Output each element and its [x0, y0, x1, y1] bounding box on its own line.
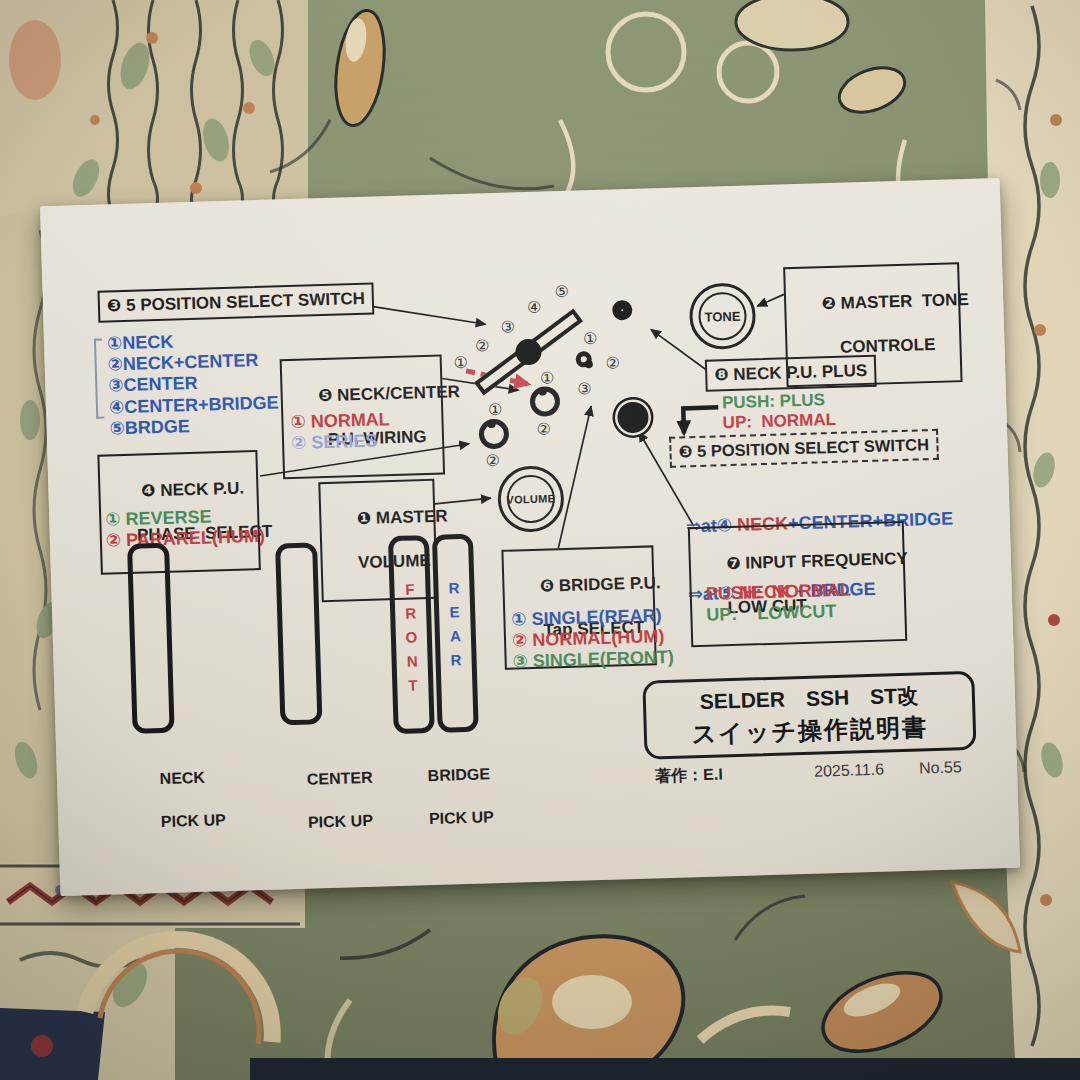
center-pickup-line1: CENTER: [306, 768, 372, 787]
tap-options: ① SINGLE(REAR) ② NORMAL(HUM) ③ SINGLE(FR…: [511, 605, 674, 673]
pu-wiring-line1: ❺ NECK/CENTER: [318, 382, 460, 405]
neck-plus-box: ❽ NECK P.U. PLUS: [705, 355, 877, 392]
wiring-knob-label-1: ①: [536, 367, 559, 390]
neck-plus-up: UP: NORMAL: [722, 410, 836, 433]
arrow-to-lever: [373, 303, 486, 327]
sheet-date: 2025.11.6: [814, 761, 885, 781]
sheet-number: No.55: [919, 758, 962, 777]
center-pickup: [275, 542, 322, 725]
phase-select-line1: ❹ NECK P.U.: [141, 479, 244, 501]
fan-number-5: ⑤: [550, 281, 573, 304]
input-freq-options: PUSH: NORMAL UP: LOWCUT: [705, 580, 851, 627]
fan-number-3: ③: [496, 316, 519, 339]
wiring-options: ① NORMAL ② SERIES: [290, 409, 390, 454]
neck-pickup: [127, 543, 175, 734]
photo-of-switch-manual: ❸ 5 POSITION SELECT SWITCH ①NECK ②NECK+C…: [0, 0, 1080, 1080]
phase-options: ① REVERSE ② PARAREL(HUM): [105, 505, 265, 552]
tone-knob-label: TONE: [698, 291, 747, 340]
bridge-rear-label: REAR: [445, 579, 466, 727]
center-pickup-label: CENTER PICK UP: [279, 745, 375, 856]
bridge-pickup-rear-coil: REAR: [432, 534, 479, 733]
bridge-pickup-line2: PICK UP: [429, 808, 494, 827]
instruction-sheet: ❸ 5 POSITION SELECT SWITCH ①NECK ②NECK+C…: [40, 178, 1020, 896]
wiring-option-2: ② SERIES: [291, 430, 391, 454]
elbow-arrow-push: [683, 407, 719, 433]
bridge-tap-line1: ❻ BRIDGE P.U.: [540, 573, 661, 596]
bridge-front-label: FRONT: [401, 580, 422, 728]
neck-pickup-line1: NECK: [159, 768, 205, 786]
bridge-pickup-label: BRIDGE PICK UP: [400, 741, 495, 852]
select-position-list: ①NECK ②NECK+CENTER ③CENTER ④CENTER+BRIDG…: [107, 328, 280, 439]
neck-pickup-line2: PICK UP: [161, 811, 226, 830]
master-tone-line2: CONTROLE: [840, 335, 936, 357]
tap-pot-label-2: ②: [602, 352, 625, 375]
tap-pot: [576, 351, 592, 367]
sheet-title-box: SELDER SSH ST改 スイッチ操作説明書: [642, 671, 976, 760]
wiring-knob-label-2: ②: [532, 418, 555, 441]
input-freq-up: UP: LOWCUT: [706, 601, 852, 627]
phase-knob-dot: [488, 420, 496, 428]
sheet-title-line2: スイッチ操作説明書: [650, 710, 969, 751]
master-volume-line1: ❶ MASTER: [356, 507, 447, 529]
wiring-option-1: ① NORMAL: [290, 409, 390, 433]
tap-pot-label-3: ③: [573, 378, 596, 401]
fan-number-1: ①: [449, 352, 472, 375]
fan-number-4: ④: [523, 296, 546, 319]
arrow-tone: [757, 294, 784, 306]
neck-plus-options: PUSH: PLUS UP: NORMAL: [722, 390, 836, 433]
center-pickup-line2: PICK UP: [308, 812, 373, 831]
tap-pot-label-1: ①: [579, 328, 602, 351]
author-credit: 著作：E.I: [655, 764, 723, 787]
neck-pickup-label: NECK PICK UP: [132, 744, 227, 855]
arrow-volume: [435, 498, 491, 504]
bridge-pickup-line1: BRIDGE: [427, 765, 490, 784]
phase-knob-label-2: ②: [481, 450, 504, 473]
fan-number-2: ②: [471, 335, 494, 358]
master-tone-line1: ❷ MASTER TONE: [821, 290, 969, 313]
bridge-pickup-front-coil: FRONT: [388, 535, 435, 734]
volume-knob-label: VOLUME: [506, 474, 555, 523]
phase-knob-label-1: ①: [484, 399, 507, 422]
arrow-tap-pot: [554, 406, 595, 548]
input-freq-line1: ❼ INPUT FREQUENCY: [726, 549, 908, 573]
